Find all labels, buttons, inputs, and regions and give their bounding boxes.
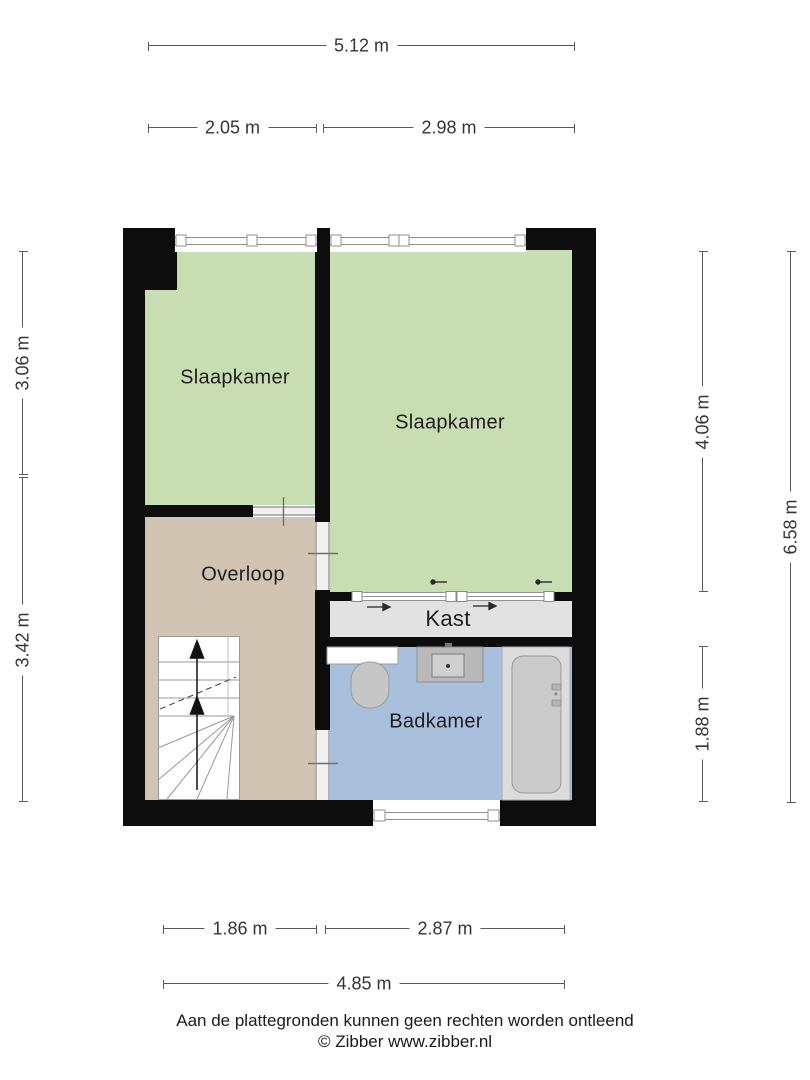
room-label-bedroom-right: Slaapkamer — [395, 412, 505, 435]
room-label-closet: Kast — [425, 606, 470, 632]
dim-top-total-label: 5.12 m — [326, 35, 397, 56]
footer-disclaimer: Aan de plattegronden kunnen geen rechten… — [0, 1010, 810, 1031]
footer: Aan de plattegronden kunnen geen rechten… — [0, 1010, 810, 1052]
dim-bottom-right: 2.87 m — [325, 928, 565, 929]
room-bathroom: Badkamer — [330, 647, 572, 800]
door-opening-bedroom-right — [315, 522, 330, 590]
room-label-landing: Overloop — [201, 564, 285, 587]
dim-top-total: 5.12 m — [148, 45, 575, 46]
dim-left-lower: 3.42 m — [22, 477, 23, 802]
window-bedroom-left — [175, 228, 317, 252]
wall-right — [572, 228, 596, 826]
dim-top-right-label: 2.98 m — [413, 117, 484, 138]
dim-bottom-right-label: 2.87 m — [409, 918, 480, 939]
dim-right-upper-label: 4.06 m — [692, 386, 713, 457]
dim-bottom-total-label: 4.85 m — [328, 973, 399, 994]
door-opening-bedroom-left — [253, 506, 315, 516]
floorplan-page: Slaapkamer Slaapkamer Overloop Kast Badk… — [0, 0, 810, 1080]
dim-left-lower-label: 3.42 m — [12, 604, 33, 675]
dim-top-right: 2.98 m — [323, 127, 575, 128]
wall-left — [123, 228, 145, 826]
wall-chimney-notch — [123, 228, 177, 290]
dim-right-lower-label: 1.88 m — [692, 688, 713, 759]
room-landing: Overloop — [145, 517, 315, 800]
wall-slidingdoor-left — [330, 592, 353, 601]
dim-right-total: 6.58 m — [790, 251, 791, 803]
room-bedroom-right: Slaapkamer — [330, 250, 572, 593]
dim-left-upper: 3.06 m — [22, 251, 23, 475]
dim-bottom-total: 4.85 m — [163, 983, 565, 984]
wall-bottom — [123, 800, 596, 826]
room-closet: Kast — [330, 600, 572, 637]
wall-closet-bottom — [330, 637, 572, 647]
dim-top-left: 2.05 m — [148, 127, 317, 128]
room-label-bathroom: Badkamer — [389, 711, 483, 734]
dim-right-upper: 4.06 m — [702, 251, 703, 592]
dim-top-left-label: 2.05 m — [197, 117, 268, 138]
dim-left-upper-label: 3.06 m — [12, 327, 33, 398]
room-label-bedroom-left: Slaapkamer — [180, 367, 290, 390]
dim-bottom-left: 1.86 m — [163, 928, 317, 929]
dim-bottom-left-label: 1.86 m — [204, 918, 275, 939]
dim-right-lower: 1.88 m — [702, 646, 703, 802]
footer-copyright: © Zibber www.zibber.nl — [0, 1031, 810, 1052]
wall-slidingdoor-right — [553, 592, 572, 601]
door-opening-bathroom — [315, 730, 330, 800]
dim-right-total-label: 6.58 m — [780, 491, 801, 562]
window-bathroom — [373, 800, 500, 829]
wall-bedroom-landing — [145, 505, 253, 517]
window-bedroom-right — [330, 228, 526, 252]
